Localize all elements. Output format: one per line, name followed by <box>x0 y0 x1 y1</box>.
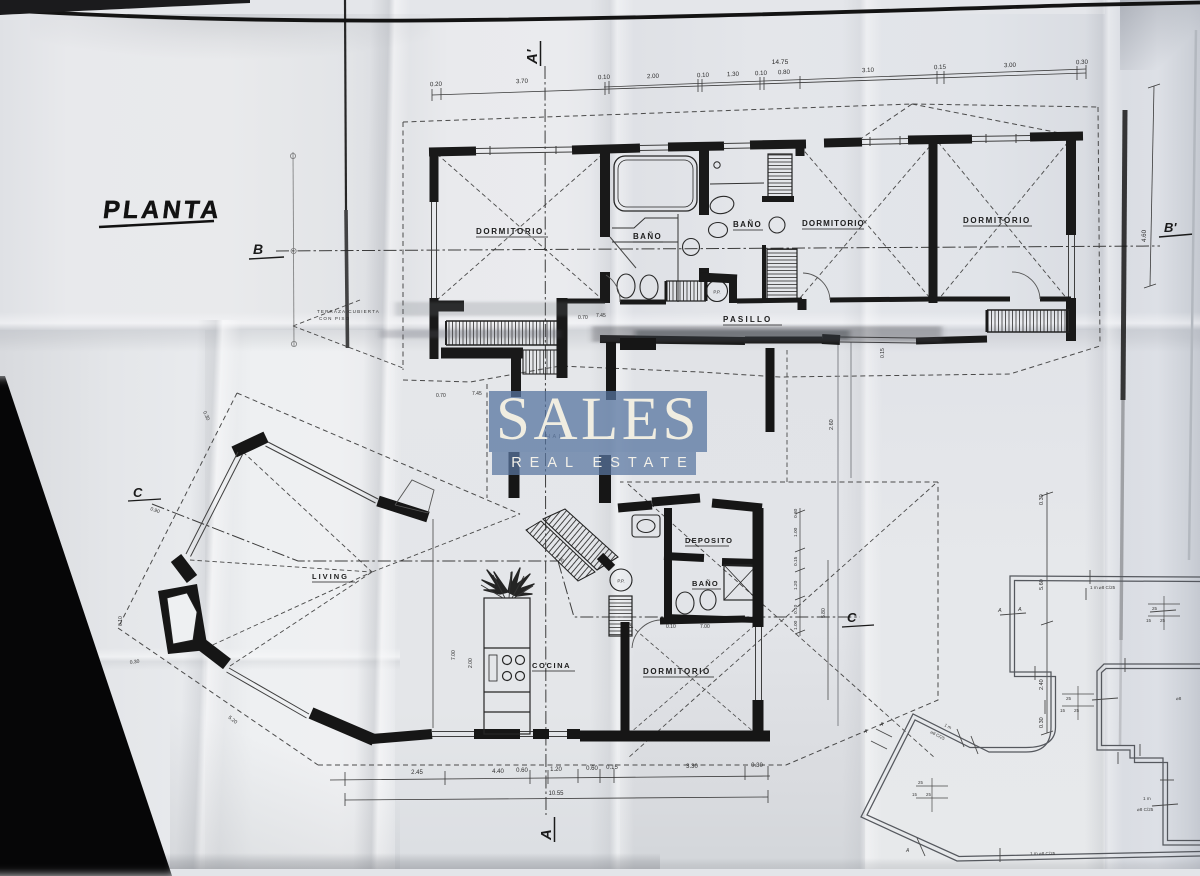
svg-text:0.10: 0.10 <box>793 604 799 614</box>
svg-text:0.10: 0.10 <box>755 70 768 77</box>
svg-text:1 m ⌀8 C/25: 1 m ⌀8 C/25 <box>1030 851 1056 856</box>
svg-text:2.45: 2.45 <box>411 770 423 776</box>
svg-text:0.60: 0.60 <box>586 766 598 772</box>
svg-text:5.80: 5.80 <box>821 608 827 618</box>
svg-text:1.00: 1.00 <box>793 527 799 537</box>
svg-text:1.20: 1.20 <box>550 767 562 773</box>
svg-text:DORMITORIO: DORMITORIO <box>802 219 865 228</box>
svg-text:25: 25 <box>1066 696 1072 701</box>
svg-text:14.75: 14.75 <box>772 59 789 66</box>
svg-text:0.15: 0.15 <box>606 765 618 771</box>
svg-text:4.40: 4.40 <box>492 769 504 775</box>
svg-text:25: 25 <box>918 780 923 785</box>
svg-text:0.90: 0.90 <box>149 506 160 515</box>
svg-text:B: B <box>253 241 263 257</box>
svg-text:3.10: 3.10 <box>862 67 875 74</box>
svg-text:1 m: 1 m <box>944 722 953 730</box>
svg-text:A: A <box>997 608 1002 614</box>
svg-text:PLANTA: PLANTA <box>101 196 223 224</box>
svg-text:0.30: 0.30 <box>1076 59 1089 66</box>
svg-text:15: 15 <box>1060 708 1066 713</box>
svg-text:B': B' <box>1164 220 1177 235</box>
svg-text:0.70: 0.70 <box>436 393 446 399</box>
svg-text:0.15: 0.15 <box>880 348 886 358</box>
svg-text:BAÑO: BAÑO <box>733 220 762 229</box>
svg-text:COCINA: COCINA <box>532 661 571 670</box>
svg-text:25: 25 <box>926 792 931 797</box>
svg-text:C: C <box>847 610 857 625</box>
svg-text:1 m: 1 m <box>1143 796 1151 801</box>
svg-text:15: 15 <box>912 792 917 797</box>
svg-text:0.30: 0.30 <box>1039 717 1045 728</box>
svg-text:BAÑO: BAÑO <box>633 232 662 241</box>
svg-text:0.80: 0.80 <box>778 69 791 76</box>
svg-text:DORMITORIO: DORMITORIO <box>476 227 544 236</box>
svg-text:A: A <box>905 848 910 854</box>
svg-text:A: A <box>863 729 868 735</box>
svg-text:DORMITORIO: DORMITORIO <box>643 667 711 676</box>
svg-text:P.P.: P.P. <box>617 579 624 584</box>
svg-text:7.45: 7.45 <box>472 391 482 397</box>
svg-text:P.P.: P.P. <box>713 290 720 295</box>
svg-text:DEPOSITO: DEPOSITO <box>685 536 733 545</box>
svg-text:A: A <box>879 722 884 728</box>
svg-text:0.60: 0.60 <box>516 768 528 774</box>
svg-text:A': A' <box>524 49 541 65</box>
svg-text:0.30: 0.30 <box>793 508 799 518</box>
svg-text:0.30: 0.30 <box>129 659 140 666</box>
svg-text:2.00: 2.00 <box>647 73 660 80</box>
svg-text:25: 25 <box>1074 708 1080 713</box>
svg-text:⌀8: ⌀8 <box>1176 696 1182 701</box>
svg-text:0.15: 0.15 <box>934 64 947 71</box>
svg-text:15: 15 <box>1146 618 1152 623</box>
svg-text:1.00: 1.00 <box>793 620 799 630</box>
svg-text:0.30: 0.30 <box>1039 494 1045 505</box>
svg-text:0.10: 0.10 <box>697 72 710 79</box>
svg-text:0.70: 0.70 <box>578 315 588 321</box>
svg-text:4.60: 4.60 <box>1141 229 1148 242</box>
svg-text:3.30: 3.30 <box>686 764 698 770</box>
svg-text:0.30: 0.30 <box>751 763 763 769</box>
svg-text:25: 25 <box>1152 606 1158 611</box>
svg-text:7.45: 7.45 <box>596 313 606 319</box>
svg-text:2.00: 2.00 <box>468 658 474 668</box>
svg-text:1 m ⌀8 C/25: 1 m ⌀8 C/25 <box>1090 585 1116 590</box>
svg-text:7.00: 7.00 <box>700 624 710 630</box>
svg-text:25: 25 <box>1160 618 1166 623</box>
svg-text:0.30: 0.30 <box>201 410 211 422</box>
svg-text:⌀8 C/25: ⌀8 C/25 <box>1137 807 1154 812</box>
svg-text:2.40: 2.40 <box>1039 679 1045 690</box>
svg-text:0.10: 0.10 <box>666 624 676 630</box>
svg-text:5.20: 5.20 <box>227 715 239 726</box>
svg-text:0.10: 0.10 <box>598 74 611 81</box>
svg-text:0.15: 0.15 <box>793 556 799 566</box>
svg-text:1.30: 1.30 <box>727 71 740 78</box>
svg-text:BAÑO: BAÑO <box>692 579 719 588</box>
svg-text:3.00: 3.00 <box>1004 62 1017 69</box>
svg-text:A: A <box>1017 607 1022 613</box>
svg-text:2.60: 2.60 <box>829 419 835 430</box>
svg-text:PASILLO: PASILLO <box>723 315 772 324</box>
svg-text:10.55: 10.55 <box>548 791 564 797</box>
svg-text:0.10: 0.10 <box>118 616 124 626</box>
svg-text:C: C <box>133 485 143 500</box>
svg-text:7.00: 7.00 <box>451 650 457 660</box>
svg-text:DORMITORIO: DORMITORIO <box>963 216 1031 225</box>
svg-text:LIVING: LIVING <box>312 572 349 581</box>
svg-text:1.20: 1.20 <box>793 580 799 590</box>
svg-text:A: A <box>538 829 555 841</box>
svg-text:3.70: 3.70 <box>516 78 529 85</box>
svg-text:0.20: 0.20 <box>430 81 443 88</box>
